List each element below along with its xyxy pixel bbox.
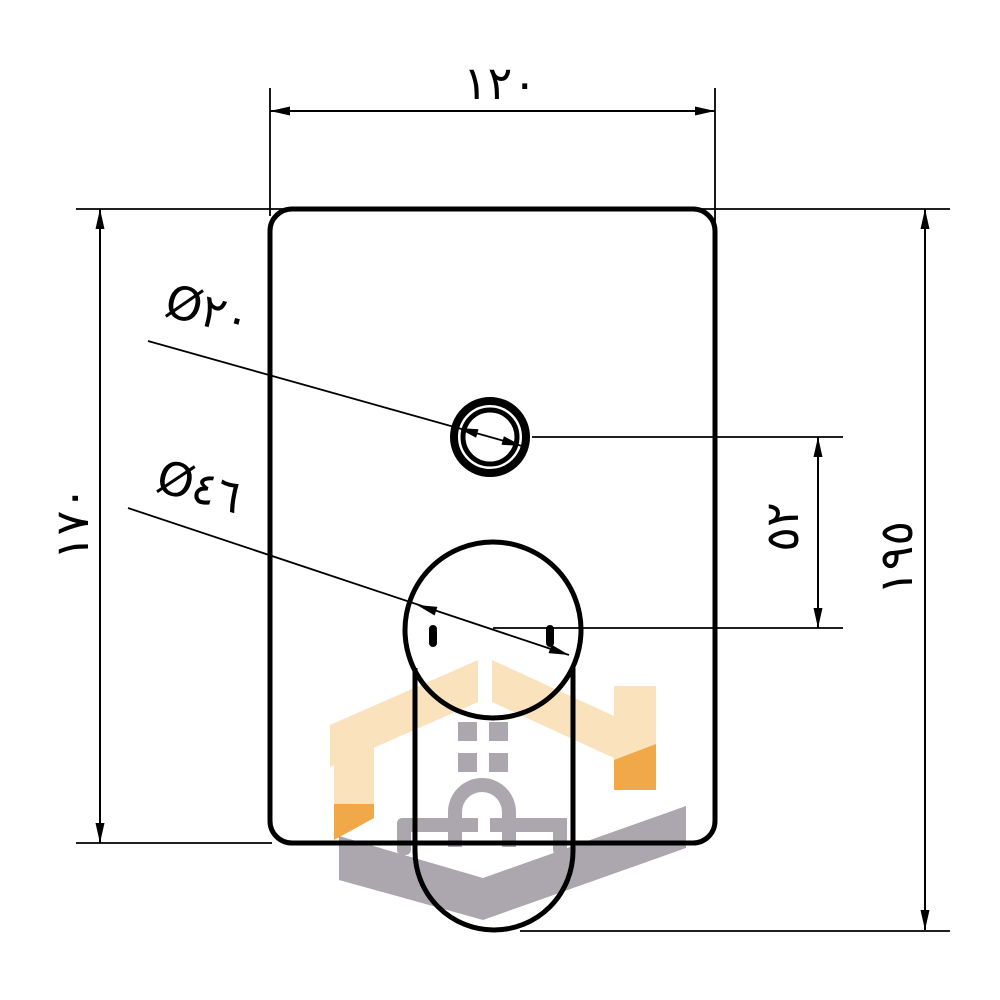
dimension-height-right: ١٩٥ [869,209,930,930]
dimension-center-distance: ٥٢ [755,437,823,628]
dimension-label-195: ١٩٥ [869,521,923,595]
technical-drawing-page: ١٢٠ ١٧٠ ١٩٥ ٥٢ Ø٢٠ Ø٤٦ [0,0,1000,1000]
dimension-height-left: ١٧٠ [45,209,105,843]
dimension-width-top: ١٢٠ [270,56,715,116]
watermark-house-logo-icon [330,660,686,920]
diameter-label-46: Ø٤٦ [151,449,248,525]
dimension-label-52: ٥٢ [755,502,809,551]
technical-drawing-canvas: ١٢٠ ١٧٠ ١٩٥ ٥٢ Ø٢٠ Ø٤٦ [0,0,1000,1000]
dimension-label-120: ١٢٠ [463,56,537,110]
handle-index-mark-left [429,625,437,647]
diameter-label-20: Ø٢٠ [160,273,257,347]
dimension-label-170: ١٧٠ [45,486,99,560]
callout-handle-diameter: Ø٤٦ [128,449,569,655]
